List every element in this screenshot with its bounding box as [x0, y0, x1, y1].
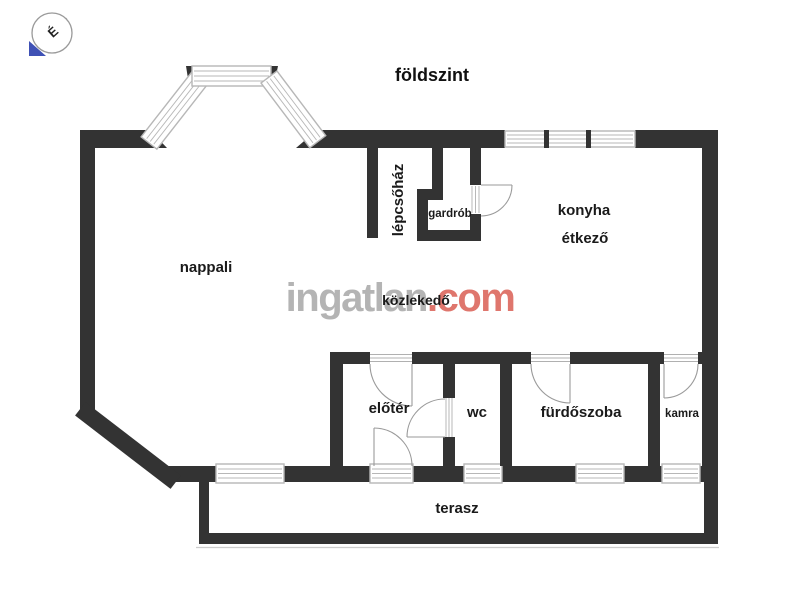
window-pantry: [662, 464, 700, 483]
wall-wc-bathroom: [500, 352, 512, 466]
wall-segment: [306, 130, 505, 148]
wardrobe-door-swing: [481, 185, 512, 216]
room-label-terasz: terasz: [435, 500, 478, 517]
window-bathroom: [576, 464, 624, 483]
wall-entry-wc: [443, 352, 455, 398]
wall-left: [80, 130, 95, 418]
kitchen-window: [505, 130, 635, 148]
wall-bathroom-pantry: [648, 352, 660, 466]
wall-staircase: [367, 148, 378, 238]
floor-plan-drawing: ingatlan.com É földszint: [0, 0, 800, 600]
window-mullion: [586, 130, 591, 148]
window-living-room: [216, 464, 284, 483]
terrace-wall-bottom: [199, 533, 718, 544]
floor-plan-page: ingatlan.com É földszint: [0, 0, 800, 600]
room-label-eloter: előtér: [369, 400, 410, 417]
entry-door-frame: [370, 352, 412, 364]
room-label-furdoszoba: fürdőszoba: [541, 404, 622, 421]
room-label-lepcsohaz: lépcsőház: [390, 164, 407, 237]
bay-window-top-pane: [192, 66, 271, 86]
wc-door-swing: [407, 399, 445, 437]
wall-corridor: [698, 352, 704, 364]
room-label-gardrob: gardrób: [428, 208, 471, 220]
pantry-door-swing: [664, 364, 698, 398]
terrace-door-swing: [374, 428, 412, 466]
room-label-nappali: nappali: [180, 259, 233, 276]
wc-door-frame: [444, 398, 454, 437]
wall-wardrobe: [470, 148, 481, 185]
pantry-door-frame: [664, 352, 698, 364]
compass-icon: É: [29, 13, 72, 56]
bathroom-door-swing: [531, 364, 570, 403]
terrace-door-frame: [370, 464, 413, 483]
wall-diagonal: [87, 414, 169, 477]
wall-right: [702, 130, 718, 482]
wall-corridor: [412, 352, 531, 364]
bay-window: [141, 66, 326, 149]
room-label-kamra: kamra: [665, 408, 699, 420]
room-label-wc: wc: [466, 404, 487, 421]
terrace-wall-right: [704, 482, 718, 544]
room-label-etkezo: étkező: [562, 230, 609, 247]
window-mullion: [544, 130, 549, 148]
bay-window-right-pane: [261, 71, 326, 148]
window-wc: [464, 464, 502, 483]
room-label-konyha: konyha: [558, 202, 611, 219]
exterior-walls: [80, 66, 718, 482]
wardrobe-door-frame: [471, 185, 480, 214]
wall-entry-left: [330, 352, 343, 466]
wall-entry-wc: [443, 437, 455, 466]
bathroom-door-frame: [531, 352, 570, 364]
room-label-kozlekedo: közlekedő: [382, 292, 450, 308]
page-title: földszint: [395, 65, 469, 85]
